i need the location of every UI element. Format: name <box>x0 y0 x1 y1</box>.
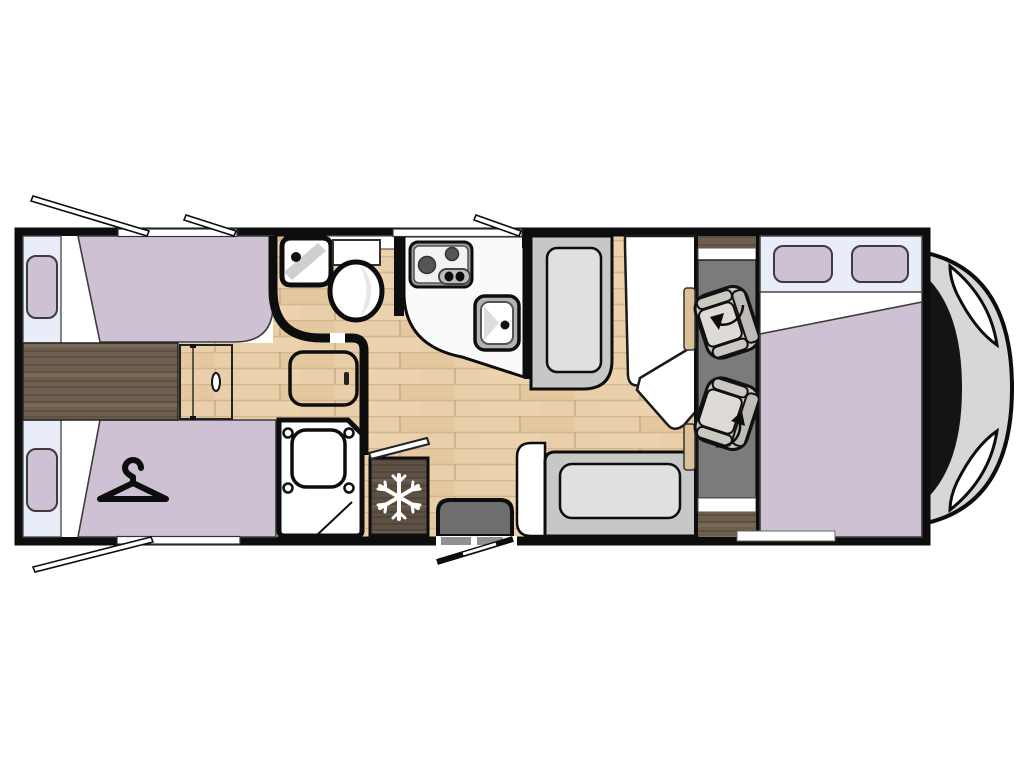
stove-controls <box>439 269 470 284</box>
pillow-front-left <box>774 246 832 282</box>
stove <box>410 242 472 287</box>
toilet <box>330 240 382 320</box>
entry-step <box>438 500 512 536</box>
corner-sink <box>282 238 331 285</box>
bench-top-cushion <box>547 248 601 372</box>
entry-pillar <box>517 443 545 536</box>
storage-pouf <box>290 352 357 405</box>
pillow-front-right <box>852 246 908 282</box>
shower <box>279 420 362 536</box>
cab-cabinet-top <box>698 236 756 248</box>
bathroom-door-gap <box>330 333 345 343</box>
faucet-dot <box>501 321 510 330</box>
stove-burner-small <box>446 248 459 261</box>
faucet-dot <box>291 252 301 262</box>
side-cabinet-bottom <box>684 424 695 470</box>
cab-area <box>684 236 763 536</box>
pillow-rear-bottom <box>27 449 57 511</box>
motorhome-floorplan <box>0 0 1024 768</box>
service-hatch-strip <box>737 531 835 541</box>
bench-bottom-cushion <box>560 464 680 518</box>
pillow-rear-top <box>27 256 57 318</box>
front-bed <box>737 236 922 541</box>
side-cabinet-top <box>684 288 695 350</box>
pouf-handle <box>344 372 349 385</box>
duvet-front <box>760 302 922 537</box>
duvet-rear-top <box>78 236 273 342</box>
pull-out-step <box>180 344 232 420</box>
kitchen-sink <box>475 296 519 350</box>
wardrobe-chest <box>23 343 178 420</box>
stove-burner-large <box>419 257 436 274</box>
duvet-rear-bottom <box>78 420 276 537</box>
step-handle <box>212 373 220 391</box>
